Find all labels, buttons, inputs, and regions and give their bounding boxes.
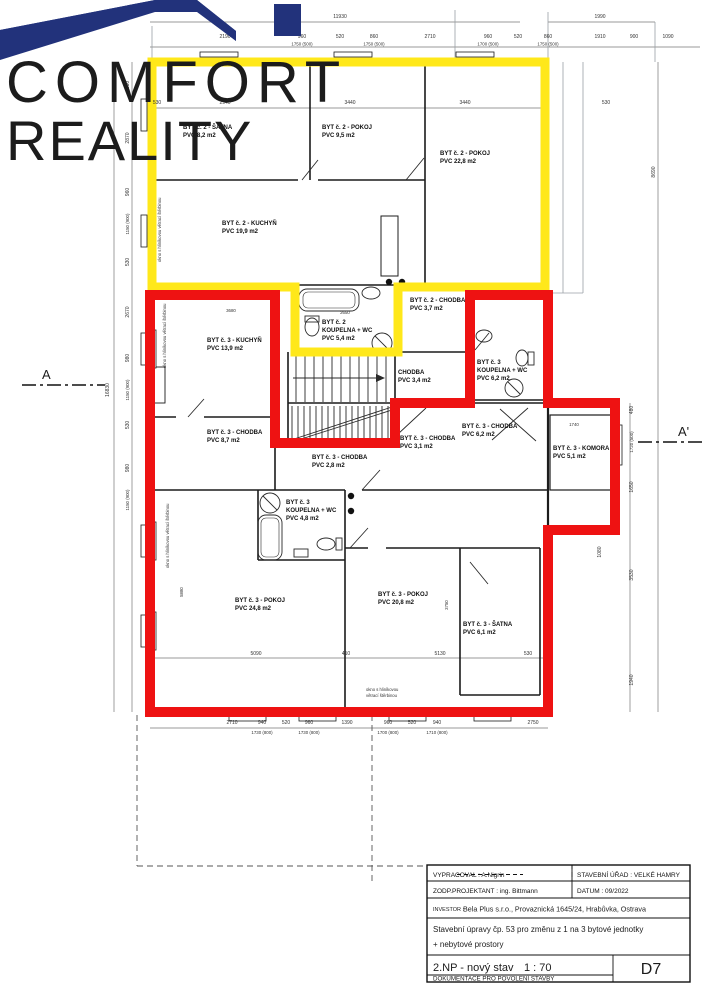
dim-label: 520 — [408, 720, 417, 726]
chimney-icon — [274, 4, 301, 36]
room-label: BYT č. 3 — [477, 360, 501, 366]
dim-label: 1090 — [662, 34, 673, 40]
dim-label: 1650 — [629, 481, 635, 492]
room-area: PVC 6,2 m2 — [462, 432, 495, 438]
dim-label: 1080 — [597, 546, 603, 557]
dim-label: 1700 (800) — [377, 730, 399, 735]
room-label: KOUPELNA + WC — [322, 328, 373, 334]
dim-label: 1940 — [629, 674, 635, 685]
sink-symbol — [476, 330, 492, 342]
logo-text-reality: REALITY — [6, 109, 253, 172]
dim-label: 1910 — [594, 34, 605, 40]
room-area: PVC 6,1 m2 — [463, 630, 496, 636]
dim-label: 900 — [630, 34, 639, 40]
dim-label: 960 — [305, 720, 314, 726]
room-label: BYT č. 3 - KUCHYŇ — [207, 336, 262, 344]
room-area: PVC 13,9 m2 — [207, 346, 244, 352]
drawing-name: 2.NP - nový stav — [433, 962, 514, 974]
scale: 1 : 70 — [524, 962, 552, 974]
dim-label: 5090 — [250, 651, 261, 657]
investor-label: INVESTOR : — [433, 907, 465, 913]
dim-label: 960 — [125, 188, 131, 197]
dim-label: 1750 (500) — [363, 42, 385, 47]
investor-value: Bela Plus s.r.o., Provaznická 1645/24, H… — [463, 905, 646, 914]
room-label: BYT č. 3 - ŠATNA — [463, 620, 513, 628]
dim-label: 1150 (900) — [125, 489, 130, 510]
dim-label: 1750 (500) — [291, 42, 313, 47]
room-area: PVC 19,9 m2 — [222, 229, 259, 235]
room-label: BYT č. 3 - POKOJ — [378, 592, 428, 598]
logo-text-comfort: COMFORT — [6, 50, 347, 115]
window-note: okno s hliníkovou větrací štěrbinou — [157, 197, 162, 262]
room-area: PVC 2,8 m2 — [312, 463, 345, 469]
dim-label: 1710 (800) — [426, 730, 448, 735]
room-area: PVC 9,5 m2 — [322, 133, 355, 139]
sink-symbol — [362, 287, 380, 299]
room-label: BYT č. 3 - POKOJ — [235, 598, 285, 604]
floor-plan-sheet: BYT č. 2 - ŠATNA PVC 8,2 m2 BYT č. 2 - P… — [0, 0, 707, 1000]
dim-label: 1390 — [341, 720, 352, 726]
window-note: okno s hliníkovou větrací štěrbinou — [165, 503, 170, 568]
room-area: PVC 24,8 m2 — [235, 606, 272, 612]
dim-label: 5130 — [434, 651, 445, 657]
dim-label: 980 — [125, 354, 131, 363]
dim-label: 480 — [629, 406, 635, 415]
room-area: PVC 22,8 m2 — [440, 159, 477, 165]
dim-label: 520 — [282, 720, 291, 726]
washer-symbol — [260, 493, 280, 513]
dim-label: 960 — [484, 34, 493, 40]
dim-label: 1750 (500) — [537, 42, 559, 47]
dim-label: 1150 (900) — [125, 379, 130, 400]
dim-label: 1730 (800) — [251, 730, 273, 735]
room-label: BYT č. 3 - CHODBA — [207, 430, 263, 436]
bathtub-symbol — [258, 515, 282, 560]
dim-label: 960 — [384, 720, 393, 726]
datum: DATUM : 09/2022 — [577, 888, 629, 895]
dim-label: 2670 — [125, 306, 131, 317]
room-label: BYT č. 2 - POKOJ — [440, 151, 490, 157]
dim-label: 3530 — [629, 569, 635, 580]
dim-label: 2710 — [226, 720, 237, 726]
room-label: BYT č. 3 - CHODBA — [462, 424, 518, 430]
sink-symbol — [294, 549, 308, 557]
dim-label: 2750 — [527, 720, 538, 726]
room-label: BYT č. 2 - KUCHYŇ — [222, 219, 277, 227]
room-area: PVC 8,7 m2 — [207, 438, 240, 444]
room-label: BYT č. 3 - KOMORA — [553, 446, 610, 452]
room-area: PVC 6,2 m2 — [477, 376, 510, 382]
room-label: BYT č. 2 — [322, 320, 346, 326]
dim-label: 530 — [125, 421, 131, 430]
project-title-line1: Stavební úpravy čp. 53 pro změnu z 1 na … — [433, 925, 643, 934]
room-label: BYT č. 2 - POKOJ — [322, 125, 372, 131]
dim-label: 3750 — [444, 600, 449, 610]
dim-label: 530 — [125, 258, 131, 267]
toilet-symbol — [305, 316, 319, 336]
unit3-outline — [150, 295, 615, 712]
dim-label: 530 — [524, 651, 533, 657]
dim-label: 1740 — [569, 422, 579, 427]
room-label: KOUPELNA + WC — [477, 368, 528, 374]
dim-label: 3680 — [226, 308, 236, 313]
window-note: okno s hliníkovou — [366, 687, 399, 692]
room-area: PVC 3,4 m2 — [398, 378, 431, 384]
dim-label: 11930 — [333, 14, 347, 20]
room-area: PVC 5,1 m2 — [553, 454, 586, 460]
window-note: okno s hliníkovou větrací štěrbinou — [162, 303, 167, 368]
dim-label: 1990 — [594, 14, 605, 20]
room-label: CHODBA — [398, 370, 425, 376]
floor-plan-drawing: BYT č. 2 - ŠATNA PVC 8,2 m2 BYT č. 2 - P… — [0, 0, 707, 1000]
dim-label: 1700 (500) — [477, 42, 499, 47]
room-label: BYT č. 3 — [286, 500, 310, 506]
dim-label: 8690 — [651, 166, 657, 177]
dim-label: 2710 — [424, 34, 435, 40]
room-area: PVC 4,8 m2 — [286, 516, 319, 522]
flue-symbol — [381, 216, 398, 276]
dim-label: 530 — [602, 100, 611, 106]
dim-label: 940 — [433, 720, 442, 726]
dim-label: 520 — [514, 34, 523, 40]
window-note: větrací štěrbinou — [366, 693, 398, 698]
bathtub-symbol — [299, 289, 359, 311]
toilet-symbol — [516, 350, 534, 366]
drawing-number: D7 — [641, 961, 662, 978]
room-area: PVC 20,8 m2 — [378, 600, 415, 606]
room-area: PVC 3,1 m2 — [400, 444, 433, 450]
logo: COMFORT REALITY — [0, 0, 347, 172]
section-marker-a-prime: A' — [678, 424, 689, 439]
vypracoval: VYPRACOVAL : A.Nigrin — [433, 872, 505, 879]
project-title-line2: + nebytové prostory — [433, 940, 503, 949]
dim-label: 980 — [125, 464, 131, 473]
dim-label: 5880 — [179, 587, 184, 597]
room-area: PVC 3,7 m2 — [410, 306, 443, 312]
room-label: BYT č. 3 - CHODBA — [400, 436, 456, 442]
room-label: BYT č. 2 - CHODBA — [410, 298, 466, 304]
room-area: PVC 5,4 m2 — [322, 336, 355, 342]
dim-label: 16830 — [105, 383, 111, 397]
projektant: ZODP.PROJEKTANT : ing. Bittmann — [433, 888, 538, 895]
doc-phase: DOKUMENTACE PRO POVOLENÍ STAVBY — [433, 976, 554, 983]
title-block: VYPRACOVAL : A.Nigrin STAVEBNÍ ÚŘAD : VE… — [427, 865, 690, 983]
room-label: BYT č. 3 - CHODBA — [312, 455, 368, 461]
dim-label: 3440 — [459, 100, 470, 106]
room-label: KOUPELNA + WC — [286, 508, 337, 514]
dim-label: 1150 (900) — [125, 213, 130, 234]
dim-label: 2650 — [340, 310, 350, 315]
dim-label: 860 — [544, 34, 553, 40]
dim-label: 1730 (800) — [298, 730, 320, 735]
dim-label: 860 — [370, 34, 379, 40]
section-marker-a: A — [42, 367, 51, 382]
dim-label: 1720 (500) — [629, 431, 634, 453]
toilet-symbol — [317, 538, 342, 550]
dim-label: 410 — [342, 651, 351, 657]
projection-lines — [137, 715, 427, 882]
dim-label: 940 — [258, 720, 267, 726]
dim-label: 520 — [336, 34, 345, 40]
stavebni-urad: STAVEBNÍ ÚŘAD : VELKÉ HAMRY — [577, 870, 681, 879]
staircase — [288, 353, 395, 441]
